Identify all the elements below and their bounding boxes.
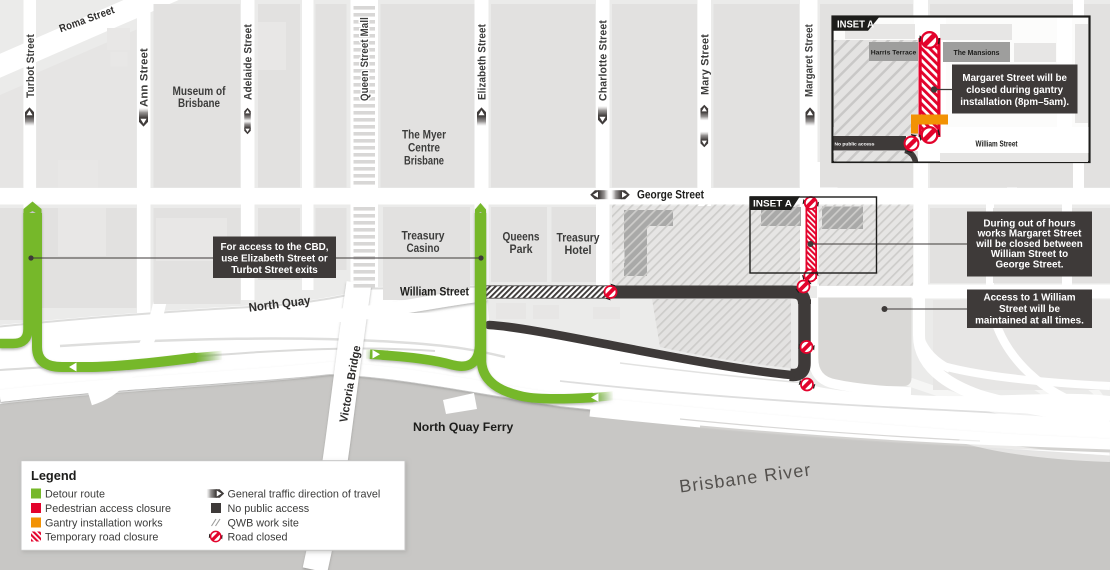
svg-text:Street will be: Street will be xyxy=(999,304,1060,315)
svg-text:Brisbane: Brisbane xyxy=(404,155,444,168)
svg-text:Treasury: Treasury xyxy=(557,232,600,245)
svg-text:No public access: No public access xyxy=(228,503,310,515)
svg-text:Hotel: Hotel xyxy=(565,244,592,257)
svg-text:use Elizabeth Street or: use Elizabeth Street or xyxy=(221,254,328,265)
svg-text:INSET A: INSET A xyxy=(753,199,793,209)
svg-text:The Mansions: The Mansions xyxy=(954,50,1000,57)
svg-text:William Street: William Street xyxy=(400,285,469,299)
svg-text:QWB work site: QWB work site xyxy=(228,518,299,530)
svg-text:Pedestrian access closure: Pedestrian access closure xyxy=(45,503,171,515)
svg-text:installation (8pm–5am).: installation (8pm–5am). xyxy=(960,97,1069,108)
svg-text:Centre: Centre xyxy=(408,142,440,155)
svg-text:INSET A: INSET A xyxy=(837,19,875,30)
svg-text:Elizabeth Street: Elizabeth Street xyxy=(477,24,489,100)
svg-text:Brisbane: Brisbane xyxy=(178,96,220,110)
svg-text:Detour route: Detour route xyxy=(45,489,105,501)
svg-text:North Quay Ferry: North Quay Ferry xyxy=(413,420,513,434)
svg-text:Charlotte Street: Charlotte Street xyxy=(598,20,610,101)
svg-text:Ann Street: Ann Street xyxy=(138,48,150,107)
svg-text:Legend: Legend xyxy=(31,468,77,483)
svg-text:Turbot Street: Turbot Street xyxy=(25,34,37,98)
svg-text:closed during gantry: closed during gantry xyxy=(966,85,1063,96)
svg-text:Margaret Street will be: Margaret Street will be xyxy=(962,73,1067,84)
svg-text:Queen Street Mall: Queen Street Mall xyxy=(359,17,371,101)
svg-text:Adelaide Street: Adelaide Street xyxy=(242,24,254,100)
svg-text:George Street: George Street xyxy=(637,188,704,202)
svg-text:Margaret Street: Margaret Street xyxy=(803,24,815,97)
svg-text:maintained at all times.: maintained at all times. xyxy=(975,316,1084,327)
svg-text:Park: Park xyxy=(510,243,534,256)
svg-text:Turbot Street exits: Turbot Street exits xyxy=(231,265,318,276)
svg-text:Casino: Casino xyxy=(407,242,440,255)
svg-text:Access to 1 William: Access to 1 William xyxy=(983,293,1075,304)
svg-text:For access to the CBD,: For access to the CBD, xyxy=(220,242,328,253)
svg-text:Treasury: Treasury xyxy=(402,230,445,243)
svg-text:The Myer: The Myer xyxy=(402,129,446,142)
svg-text:Gantry installation works: Gantry installation works xyxy=(45,518,163,530)
svg-text:General traffic direction of t: General traffic direction of travel xyxy=(228,489,381,501)
svg-text:William Street: William Street xyxy=(976,140,1018,149)
svg-text:Mary Street: Mary Street xyxy=(699,34,711,95)
svg-text:George Street.: George Street. xyxy=(995,260,1063,271)
svg-text:No public access: No public access xyxy=(835,142,875,148)
svg-text:Temporary road closure: Temporary road closure xyxy=(45,532,158,544)
svg-text:Queens: Queens xyxy=(503,231,540,244)
svg-text:Road closed: Road closed xyxy=(228,532,288,544)
svg-text:Harris Terrace: Harris Terrace xyxy=(871,49,917,56)
